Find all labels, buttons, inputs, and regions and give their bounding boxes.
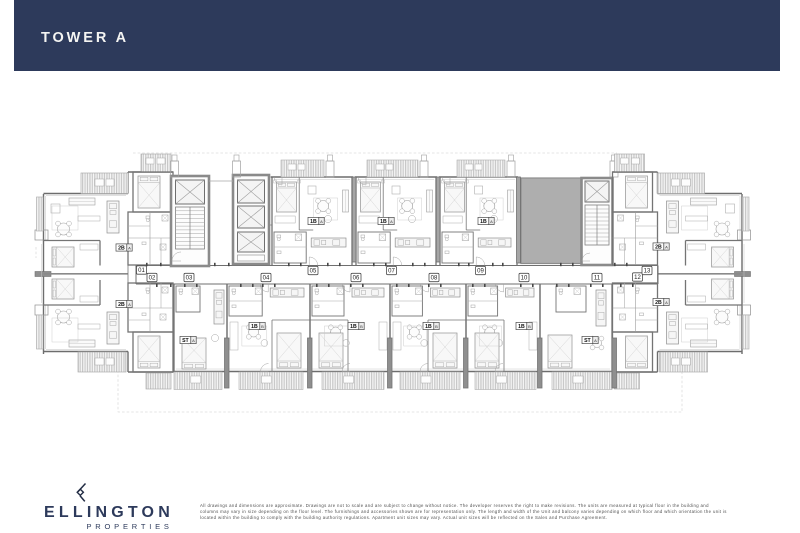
svg-text:A: A xyxy=(128,245,131,250)
svg-text:1B: 1B xyxy=(350,324,357,330)
svg-text:1B: 1B xyxy=(251,324,258,330)
svg-text:1B: 1B xyxy=(310,219,317,225)
svg-text:A: A xyxy=(490,219,493,224)
svg-text:2B: 2B xyxy=(655,245,662,251)
svg-text:2B: 2B xyxy=(118,246,125,252)
svg-text:12: 12 xyxy=(634,275,641,281)
svg-text:10: 10 xyxy=(521,276,528,282)
svg-text:1B: 1B xyxy=(518,324,525,330)
svg-text:1B: 1B xyxy=(480,219,487,225)
svg-text:ST: ST xyxy=(584,338,591,344)
svg-text:05: 05 xyxy=(310,269,317,275)
svg-text:ST: ST xyxy=(182,338,189,344)
svg-text:02: 02 xyxy=(149,276,156,282)
svg-text:08: 08 xyxy=(431,276,438,282)
svg-text:A: A xyxy=(594,338,597,343)
svg-text:2B: 2B xyxy=(118,302,125,308)
svg-text:A: A xyxy=(192,338,195,343)
svg-text:A: A xyxy=(665,300,668,305)
svg-text:B: B xyxy=(261,324,264,329)
svg-text:07: 07 xyxy=(388,269,395,275)
svg-text:A: A xyxy=(665,244,668,249)
svg-text:13: 13 xyxy=(644,269,651,275)
svg-text:04: 04 xyxy=(263,276,270,282)
svg-text:1B: 1B xyxy=(380,219,387,225)
svg-text:06: 06 xyxy=(353,276,360,282)
svg-text:A: A xyxy=(320,219,323,224)
svg-text:B: B xyxy=(528,324,531,329)
svg-text:B: B xyxy=(435,324,438,329)
svg-text:03: 03 xyxy=(186,276,193,282)
svg-text:2B: 2B xyxy=(655,300,662,306)
svg-text:A: A xyxy=(390,219,393,224)
svg-text:11: 11 xyxy=(594,276,601,282)
svg-text:A: A xyxy=(128,302,131,307)
svg-text:1B: 1B xyxy=(425,324,432,330)
svg-text:01: 01 xyxy=(138,268,145,274)
svg-text:B: B xyxy=(360,324,363,329)
svg-text:09: 09 xyxy=(477,269,484,275)
